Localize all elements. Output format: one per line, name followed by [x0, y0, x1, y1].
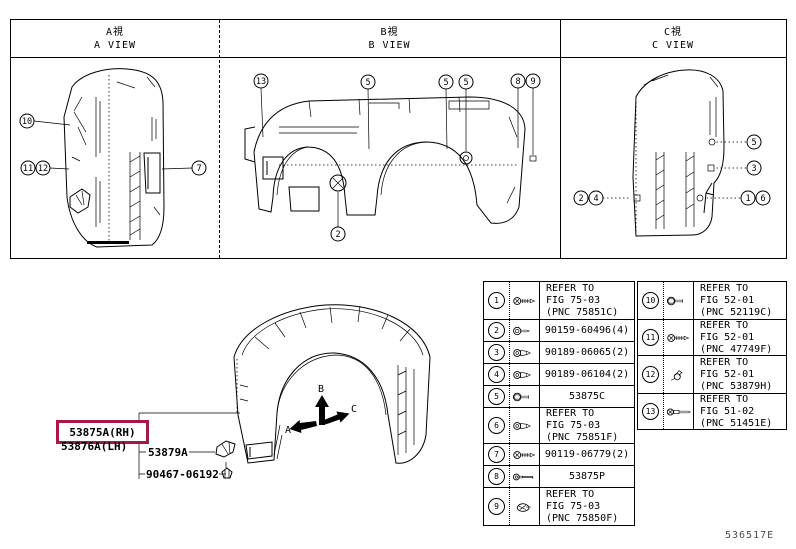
svg-text:6: 6 — [760, 194, 765, 204]
callout-number: 10 — [642, 292, 659, 309]
callout-number: 12 — [642, 366, 659, 383]
svg-text:7: 7 — [196, 164, 201, 174]
direction-label-c: C — [351, 404, 357, 415]
table-row[interactable]: 13 REFER TO FIG 51-02 (PNC 51451E) — [638, 394, 786, 429]
part-number-lh[interactable]: 53876A(LH) — [61, 440, 127, 453]
rivet-icon — [512, 419, 538, 433]
figure-code: 536517E — [725, 530, 774, 541]
view-b-title-jp: B視 — [380, 26, 398, 39]
callout-number: 5 — [488, 388, 505, 405]
part-number-53879a[interactable]: 53879A — [148, 446, 188, 459]
callout-11: 11 — [21, 161, 35, 175]
callout-number: 7 — [488, 446, 505, 463]
callout-number: 1 — [488, 292, 505, 309]
callout-5a: 5 — [361, 75, 375, 89]
screw-icon — [666, 331, 692, 345]
direction-label-a: A — [285, 425, 291, 436]
callout-number: 4 — [488, 366, 505, 383]
callout-3: 3 — [747, 161, 761, 175]
screw-icon — [512, 448, 538, 462]
callout-13: 13 — [254, 74, 268, 88]
screw-icon — [512, 294, 538, 308]
parts-catalog-page: A視 A VIEW B視 B VIEW C視 C VIEW 10 11 — [0, 0, 796, 549]
callout-4: 4 — [589, 191, 603, 205]
svg-text:5: 5 — [463, 78, 468, 88]
svg-text:9: 9 — [530, 77, 535, 87]
callout-number: 11 — [642, 329, 659, 346]
view-a-title-en: A VIEW — [94, 39, 136, 52]
callout-5b: 5 — [439, 75, 453, 89]
rivet-icon — [512, 368, 538, 382]
parts-table-right: 10 REFER TO FIG 52-01 (PNC 52119C) 11 RE… — [637, 281, 787, 430]
callout-6: 6 — [756, 191, 770, 205]
parts-table-left: 1 REFER TO FIG 75-03 (PNC 75851C) 2 9015… — [483, 281, 635, 526]
table-row[interactable]: 3 90189-06065(2) — [484, 342, 634, 364]
direction-label-b: B — [318, 384, 324, 395]
table-row[interactable]: 1 REFER TO FIG 75-03 (PNC 75851C) — [484, 282, 634, 320]
callout-9: 9 — [526, 74, 540, 88]
part-reference: 53875P — [540, 466, 634, 487]
svg-text:12: 12 — [38, 164, 48, 174]
pin-drawing — [222, 468, 232, 478]
table-row[interactable]: 10 REFER TO FIG 52-01 (PNC 52119C) — [638, 282, 786, 320]
part-reference: 90189-06065(2) — [540, 342, 634, 363]
part-reference: REFER TO FIG 51-02 (PNC 51451E) — [694, 394, 786, 429]
bolt-icon — [666, 294, 692, 308]
views-panel: A視 A VIEW B視 B VIEW C視 C VIEW 10 11 — [10, 19, 787, 259]
part-reference: REFER TO FIG 75-03 (PNC 75851F) — [540, 408, 634, 443]
callout-5: 5 — [747, 135, 761, 149]
svg-text:5: 5 — [365, 78, 370, 88]
part-reference: REFER TO FIG 52-01 (PNC 47749F) — [694, 320, 786, 355]
table-row[interactable]: 7 90119-06779(2) — [484, 444, 634, 466]
callout-number: 13 — [642, 403, 659, 420]
part-reference: REFER TO FIG 52-01 (PNC 53879H) — [694, 356, 786, 393]
svg-text:8: 8 — [515, 77, 520, 87]
bent-clip-icon — [666, 368, 692, 382]
part-reference: 90189-06104(2) — [540, 364, 634, 385]
bolt-icon — [512, 390, 538, 404]
part-reference: 90159-60496(4) — [540, 320, 634, 341]
table-row[interactable]: 4 90189-06104(2) — [484, 364, 634, 386]
grommet-icon — [512, 470, 538, 484]
view-c-header: C視 C VIEW — [560, 20, 786, 57]
part-reference: 53875C — [540, 386, 634, 407]
svg-text:10: 10 — [22, 117, 32, 127]
table-row[interactable]: 8 53875P — [484, 466, 634, 488]
svg-text:5: 5 — [443, 78, 448, 88]
fender-liner-main-drawing: B A C 53879A 90467-06192 — [130, 295, 460, 495]
callout-8: 8 — [511, 74, 525, 88]
view-a-header: A視 A VIEW — [11, 20, 219, 57]
clip-icon — [512, 324, 538, 338]
svg-text:1: 1 — [745, 194, 750, 204]
view-c-title-en: C VIEW — [652, 39, 694, 52]
callout-number: 9 — [488, 498, 505, 515]
callout-5c: 5 — [459, 75, 473, 89]
svg-text:5: 5 — [751, 138, 756, 148]
view-b-drawing: 13 5 5 5 8 9 2 — [219, 57, 560, 257]
table-row[interactable]: 9 REFER TO FIG 75-03 (PNC 75850F) — [484, 488, 634, 525]
view-a-drawing: 10 11 12 7 — [12, 57, 219, 257]
long-bolt-icon — [666, 405, 692, 419]
callout-number: 3 — [488, 344, 505, 361]
direction-arrow-a — [290, 420, 318, 433]
svg-text:2: 2 — [335, 230, 340, 240]
svg-text:3: 3 — [751, 164, 756, 174]
callout-12: 12 — [36, 161, 50, 175]
svg-text:4: 4 — [593, 194, 598, 204]
callout-number: 6 — [488, 417, 505, 434]
part-reference: REFER TO FIG 75-03 (PNC 75851C) — [540, 282, 634, 319]
clip-drawing — [216, 441, 235, 468]
callout-7: 7 — [192, 161, 206, 175]
part-number-rh: 53875A(RH) — [69, 426, 135, 439]
view-c-drawing: 2 4 5 3 1 6 — [560, 57, 786, 257]
callout-number: 2 — [488, 322, 505, 339]
wing-clip-icon — [512, 500, 538, 514]
table-row[interactable]: 6 REFER TO FIG 75-03 (PNC 75851F) — [484, 408, 634, 444]
table-row[interactable]: 2 90159-60496(4) — [484, 320, 634, 342]
direction-arrow-c — [324, 412, 350, 425]
callout-2: 2 — [574, 191, 588, 205]
view-b-header: B視 B VIEW — [219, 20, 560, 57]
table-row[interactable]: 5 53875C — [484, 386, 634, 408]
view-c-title-jp: C視 — [664, 26, 682, 39]
callout-number: 8 — [488, 468, 505, 485]
svg-text:13: 13 — [256, 77, 266, 87]
part-reference: 90119-06779(2) — [540, 444, 634, 465]
callout-10: 10 — [20, 114, 34, 128]
svg-text:2: 2 — [578, 194, 583, 204]
part-number-90467[interactable]: 90467-06192 — [146, 468, 219, 481]
part-reference: REFER TO FIG 75-03 (PNC 75850F) — [540, 488, 634, 525]
part-reference: REFER TO FIG 52-01 (PNC 52119C) — [694, 282, 786, 319]
callout-1: 1 — [741, 191, 755, 205]
table-row[interactable]: 12 REFER TO FIG 52-01 (PNC 53879H) — [638, 356, 786, 394]
callout-2: 2 — [331, 227, 345, 241]
table-row[interactable]: 11 REFER TO FIG 52-01 (PNC 47749F) — [638, 320, 786, 356]
svg-text:11: 11 — [23, 164, 33, 174]
view-b-title-en: B VIEW — [368, 39, 410, 52]
view-a-title-jp: A視 — [106, 26, 124, 39]
rivet-icon — [512, 346, 538, 360]
